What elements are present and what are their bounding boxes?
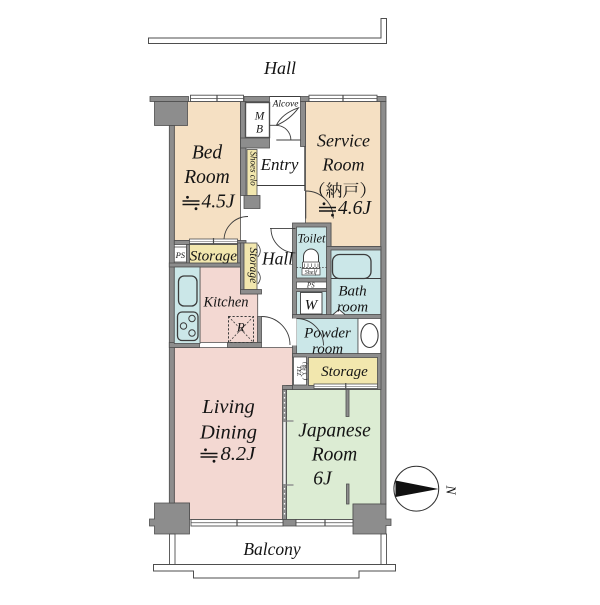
svg-text:PS: PS xyxy=(175,250,186,260)
svg-text:Shelf: Shelf xyxy=(305,269,318,276)
svg-text:Shoes clo: Shoes clo xyxy=(249,152,259,187)
svg-text:Alcove: Alcove xyxy=(272,100,299,110)
svg-text:Balcony: Balcony xyxy=(243,539,301,559)
svg-text:8.2J: 8.2J xyxy=(221,443,257,465)
svg-text:room: room xyxy=(337,300,368,316)
svg-text:Entry: Entry xyxy=(260,155,299,174)
svg-text:Hall: Hall xyxy=(263,58,296,78)
svg-text:Toilet: Toilet xyxy=(297,232,326,246)
svg-text:Storage: Storage xyxy=(321,364,368,380)
svg-text:4.5J: 4.5J xyxy=(202,192,236,213)
svg-text:W: W xyxy=(305,298,319,314)
svg-text:Living: Living xyxy=(201,396,254,418)
svg-text:Bed: Bed xyxy=(192,143,223,164)
svg-text:Room: Room xyxy=(311,445,358,466)
svg-text:B: B xyxy=(256,124,263,136)
svg-text:M: M xyxy=(254,111,266,123)
svg-text:): ) xyxy=(302,377,309,380)
svg-text:6J: 6J xyxy=(313,469,333,490)
svg-text:PS: PS xyxy=(306,282,315,290)
svg-text:Storage: Storage xyxy=(190,248,238,265)
svg-text:Kitchen: Kitchen xyxy=(202,295,248,311)
svg-text:Service: Service xyxy=(317,131,370,151)
svg-text:room: room xyxy=(312,341,343,357)
svg-text:Japanese: Japanese xyxy=(298,421,371,442)
svg-text:Powder: Powder xyxy=(303,326,351,342)
svg-text:Room: Room xyxy=(322,155,365,175)
svg-text:Room: Room xyxy=(183,167,230,188)
svg-text:Hall: Hall xyxy=(261,249,293,269)
svg-text:N: N xyxy=(444,484,459,495)
svg-text:Bath: Bath xyxy=(338,284,366,300)
svg-text:4.6J: 4.6J xyxy=(338,198,372,219)
svg-text:Storage: Storage xyxy=(247,248,259,284)
svg-text:R: R xyxy=(236,320,245,335)
svg-text:Dining: Dining xyxy=(199,422,257,444)
